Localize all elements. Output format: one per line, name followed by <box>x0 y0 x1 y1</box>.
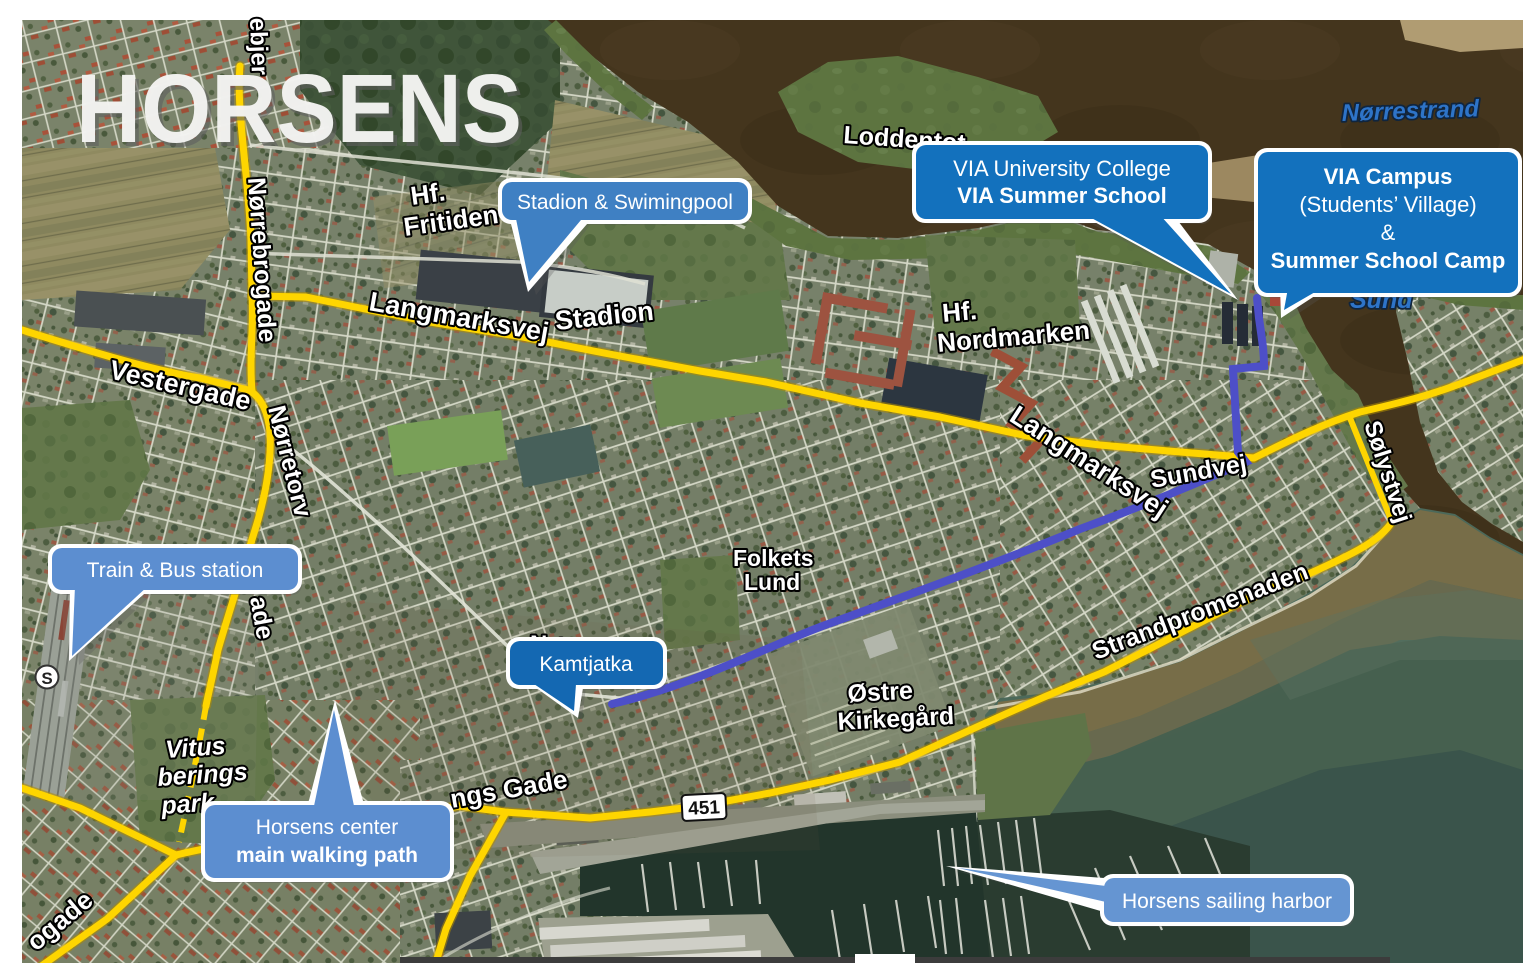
svg-text:(Students’ Village): (Students’ Village) <box>1299 192 1476 217</box>
svg-text:Train & Bus station: Train & Bus station <box>87 559 264 582</box>
svg-text:Lund: Lund <box>744 569 800 595</box>
svg-text:HORSENS: HORSENS <box>76 54 522 163</box>
svg-text:Østre: Østre <box>847 677 914 708</box>
svg-text:VIA Summer School: VIA Summer School <box>957 183 1166 208</box>
svg-text:Summer School Camp: Summer School Camp <box>1271 248 1506 273</box>
svg-text:Folkets: Folkets <box>733 545 814 571</box>
svg-text:VIA University College: VIA University College <box>953 156 1171 181</box>
svg-text:main walking path: main walking path <box>236 844 418 867</box>
svg-text:VIA Campus: VIA Campus <box>1324 164 1453 189</box>
svg-text:Horsens sailing harbor: Horsens sailing harbor <box>1122 890 1332 913</box>
svg-text:S: S <box>41 669 52 688</box>
svg-text:Horsens center: Horsens center <box>256 816 398 839</box>
svg-text:Nørrestrand: Nørrestrand <box>1341 95 1481 127</box>
svg-text:Hf.: Hf. <box>941 295 978 328</box>
svg-text:Kamtjatka: Kamtjatka <box>539 653 633 676</box>
svg-text:&: & <box>1381 220 1396 245</box>
svg-text:451: 451 <box>688 797 721 820</box>
svg-text:Stadion & Swimingpool: Stadion & Swimingpool <box>517 191 733 214</box>
